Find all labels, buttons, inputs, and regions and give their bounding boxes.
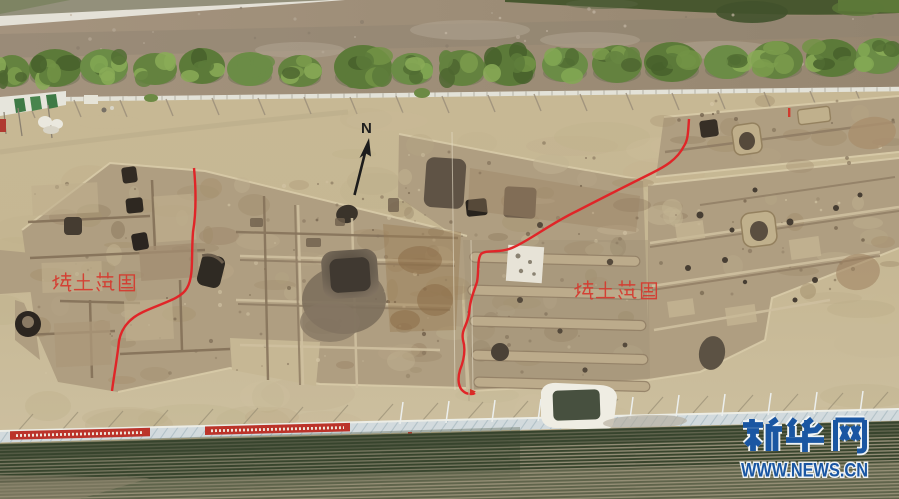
- svg-text:WWW.NEWS.CN: WWW.NEWS.CN: [741, 461, 868, 482]
- svg-text:N: N: [361, 120, 372, 137]
